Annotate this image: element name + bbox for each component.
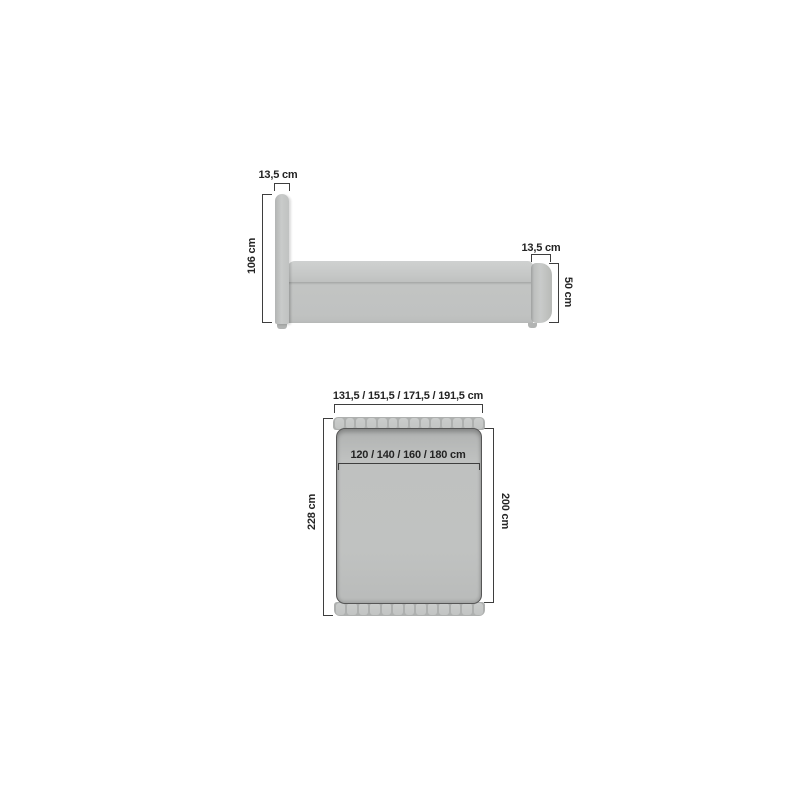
headboard-thickness-dimension-bracket xyxy=(274,183,290,191)
footboard-top-view xyxy=(334,602,485,616)
overall-length-label: 228 cm xyxy=(306,494,318,530)
footboard-leg xyxy=(528,323,537,328)
overall-length-dimension-line xyxy=(323,418,333,616)
overall-height-label: 106 cm xyxy=(246,238,258,274)
mattress-width-dimension-bracket xyxy=(338,463,480,470)
overall-height-dimension-line xyxy=(262,194,272,323)
overall-width-options-label: 131,5 / 151,5 / 171,5 / 191,5 cm xyxy=(333,390,483,402)
overall-width-dimension-bracket xyxy=(334,404,483,413)
bed-frame-side xyxy=(287,282,533,323)
mattress-length-label: 200 cm xyxy=(499,493,511,529)
headboard-side xyxy=(275,194,289,324)
mattress-length-dimension-line xyxy=(484,428,494,603)
mattress-width-options-label: 120 / 140 / 160 / 180 cm xyxy=(350,449,465,461)
footboard-thickness-dimension-bracket xyxy=(531,254,551,262)
headboard-leg xyxy=(277,324,287,329)
headboard-thickness-label: 13,5 cm xyxy=(259,169,298,181)
bed-dimensions-diagram: 13,5 cm 106 cm 13,5 cm 50 cm 33,5 cm 131… xyxy=(0,0,800,800)
footboard-side xyxy=(531,263,552,323)
mattress-side xyxy=(287,261,533,282)
footboard-height-label: 50 cm xyxy=(562,277,574,307)
footboard-thickness-label: 13,5 cm xyxy=(522,242,561,254)
